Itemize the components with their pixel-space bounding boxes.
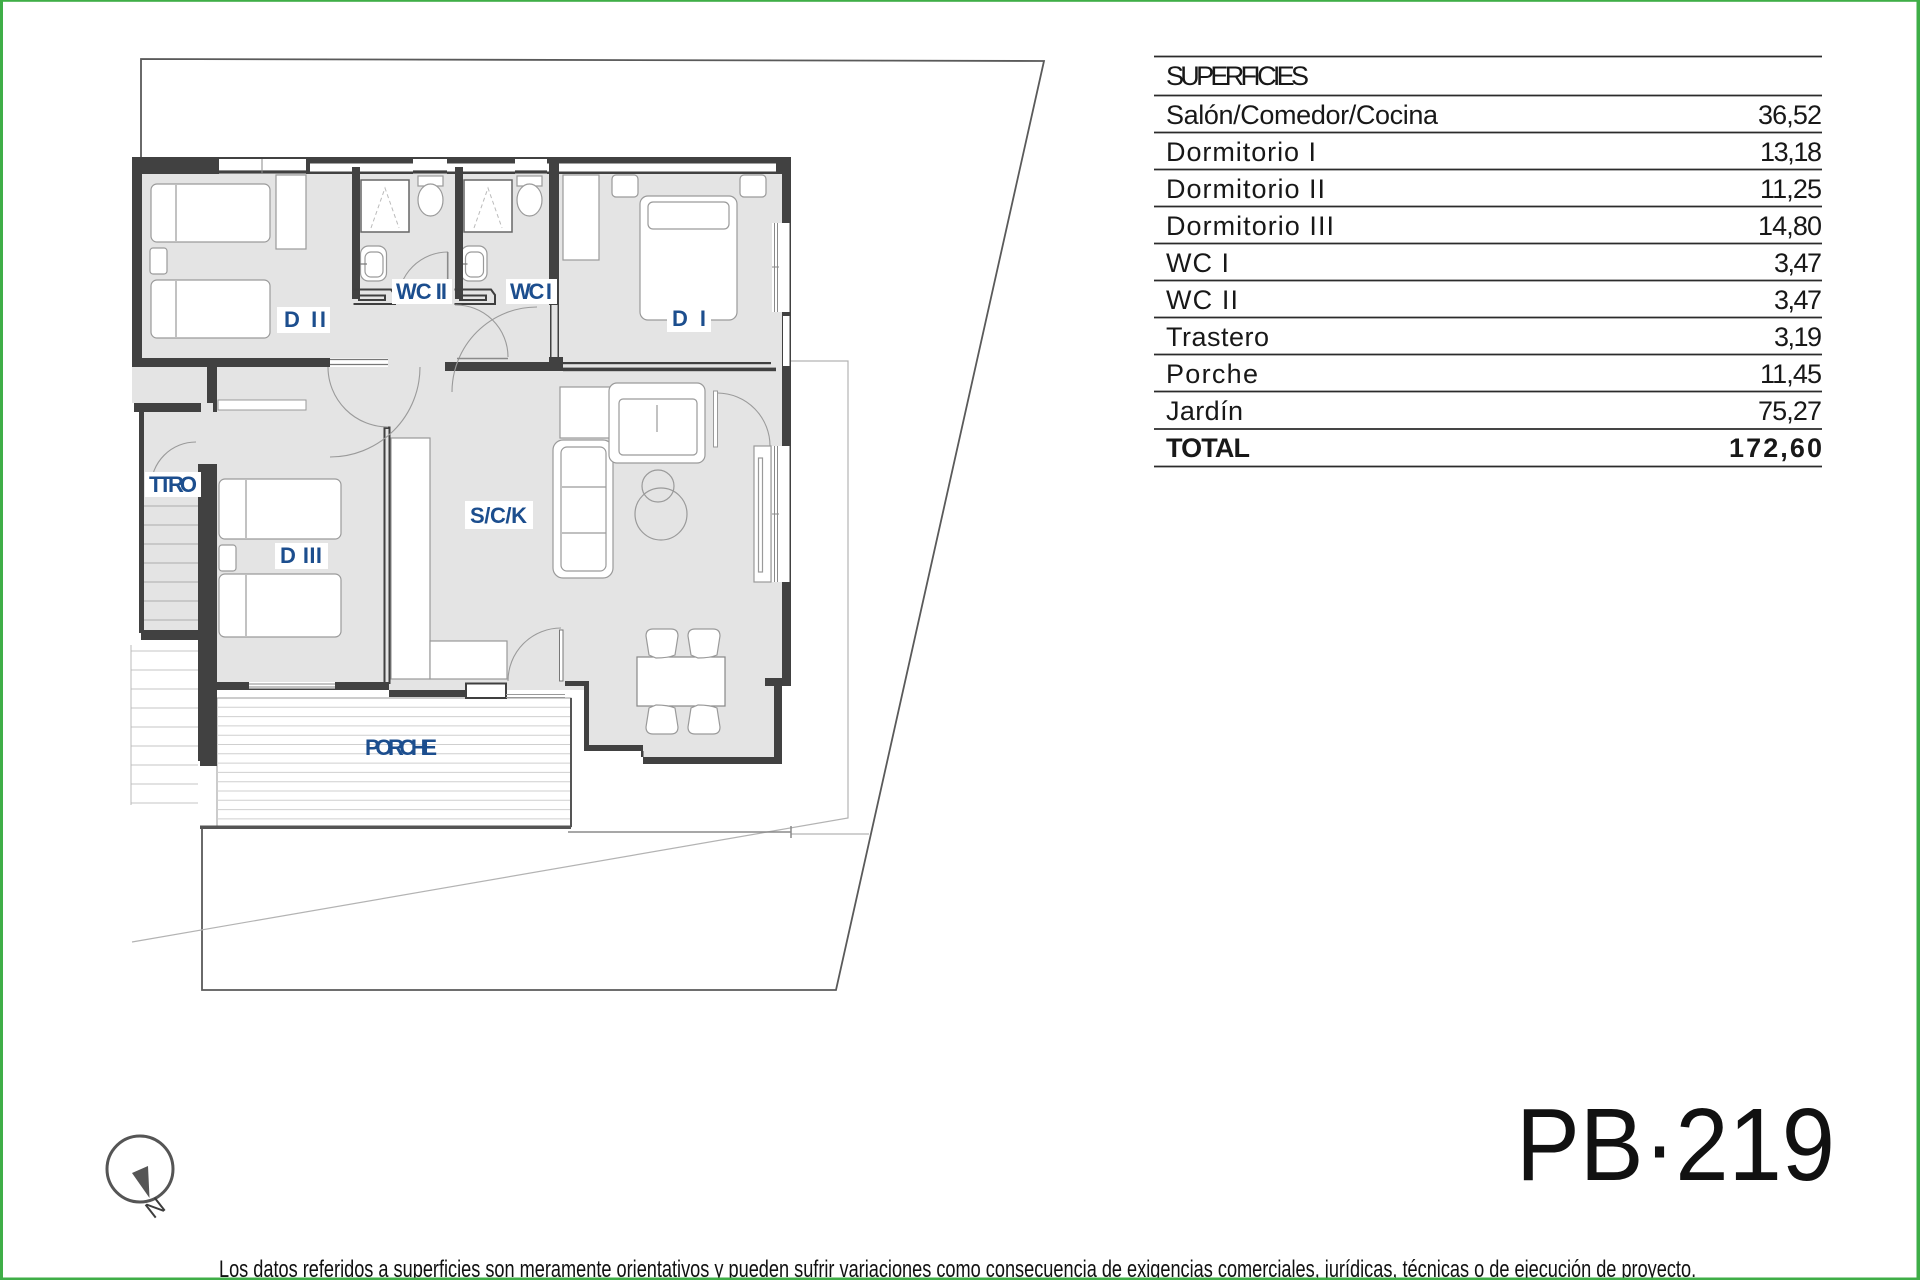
svg-text:172,60: 172,60 <box>1729 433 1822 463</box>
svg-text:13,18: 13,18 <box>1760 137 1822 167</box>
svg-text:TTRO: TTRO <box>149 472 197 497</box>
svg-text:D II: D II <box>284 307 326 332</box>
svg-text:SUPERFICIES: SUPERFICIES <box>1166 61 1309 91</box>
svg-text:WC II: WC II <box>396 279 447 304</box>
svg-text:75,27: 75,27 <box>1758 396 1822 426</box>
svg-text:3,19: 3,19 <box>1774 322 1822 352</box>
svg-text:WC I: WC I <box>510 279 552 304</box>
svg-text:N: N <box>140 1192 170 1224</box>
svg-text:11,45: 11,45 <box>1760 359 1822 389</box>
svg-text:Porche: Porche <box>1166 359 1258 389</box>
svg-text:Los datos referidos a superfic: Los datos referidos a superficies son me… <box>219 1256 1696 1280</box>
svg-text:PORCHE: PORCHE <box>365 735 437 760</box>
svg-text:TOTAL: TOTAL <box>1166 433 1250 463</box>
svg-text:Salón/Comedor/Cocina: Salón/Comedor/Cocina <box>1166 100 1439 130</box>
svg-text:11,25: 11,25 <box>1760 174 1822 204</box>
svg-text:S/C/K: S/C/K <box>470 503 527 528</box>
svg-text:Jardín: Jardín <box>1166 396 1243 426</box>
svg-text:WC II: WC II <box>1166 285 1238 315</box>
svg-text:Dormitorio II: Dormitorio II <box>1166 174 1325 204</box>
svg-text:3,47: 3,47 <box>1774 248 1822 278</box>
svg-text:Dormitorio III: Dormitorio III <box>1166 211 1334 241</box>
svg-text:WC I: WC I <box>1166 248 1229 278</box>
svg-text:PB·219: PB·219 <box>1516 1087 1835 1202</box>
svg-text:D III: D III <box>280 543 322 568</box>
svg-text:Dormitorio I: Dormitorio I <box>1166 137 1316 167</box>
svg-text:14,80: 14,80 <box>1758 211 1822 241</box>
svg-text:Trastero: Trastero <box>1166 322 1269 352</box>
svg-text:3,47: 3,47 <box>1774 285 1822 315</box>
svg-text:36,52: 36,52 <box>1758 100 1822 130</box>
